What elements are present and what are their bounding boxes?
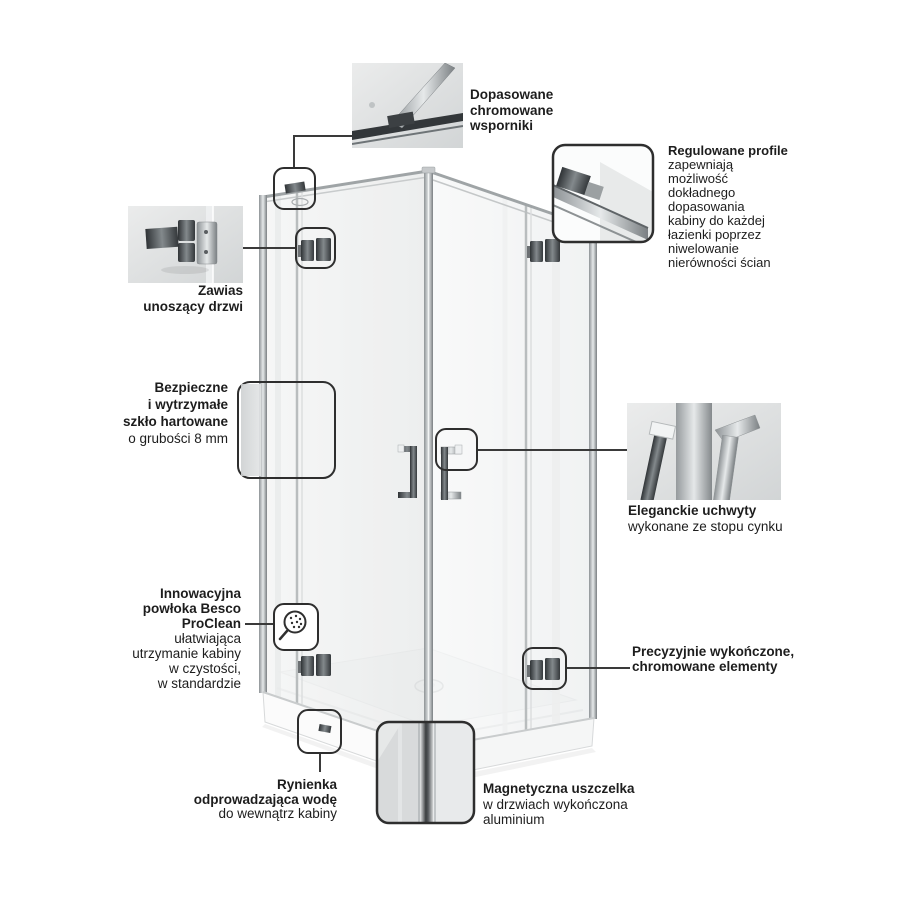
callout-tempered-glass-title: Bezpieczne i wytrzymałe szkło hartowane xyxy=(123,379,228,430)
inset-photo-handles xyxy=(627,403,781,504)
callout-adjustable-profiles-title: Regulowane profile xyxy=(668,144,788,158)
cabin-diagram xyxy=(0,0,900,900)
callout-chromed-elements: Precyzyjnie wykończone, chromowane eleme… xyxy=(632,645,794,674)
callout-magnetic-seal-text: w drzwiach wykończona aluminium xyxy=(483,797,635,828)
callout-proclean-coating-title: Innowacyjna powłoka Besco ProClean xyxy=(132,586,241,631)
inset-photo-hinge xyxy=(128,206,243,283)
callout-magnetic-seal-title: Magnetyczna uszczelka xyxy=(483,781,635,797)
callout-chromed-brackets-title: Dopasowane chromowane wsporniki xyxy=(470,87,553,134)
callout-elegant-handles-text: wykonane ze stopu cynku xyxy=(628,519,783,535)
callout-chromed-brackets: Dopasowane chromowane wsporniki xyxy=(470,87,553,134)
callout-chromed-elements-title: Precyzyjnie wykończone, chromowane eleme… xyxy=(632,645,794,674)
callout-adjustable-profiles: Regulowane profile zapewniają możliwość … xyxy=(668,144,788,270)
callout-lifting-hinge: Zawias unoszący drzwi xyxy=(143,283,243,314)
proclean-badge xyxy=(274,604,318,650)
callout-adjustable-profiles-text: zapewniają możliwość dokładnego dopasowa… xyxy=(668,158,788,270)
connector-brackets xyxy=(294,136,352,168)
callout-lifting-hinge-title: Zawias unoszący drzwi xyxy=(143,283,243,314)
callout-elegant-handles-title: Eleganckie uchwyty xyxy=(628,503,783,519)
glass-edge-sample xyxy=(241,384,261,476)
callout-proclean-coating: Innowacyjna powłoka Besco ProClean ułatw… xyxy=(132,586,241,691)
inset-photo-magnet-seal xyxy=(377,722,474,823)
infographic-canvas: Dopasowane chromowane wsporniki Regulowa… xyxy=(0,0,900,900)
callout-proclean-coating-text: ułatwiająca utrzymanie kabiny w czystośc… xyxy=(132,631,241,691)
callout-water-channel-text: do wewnątrz kabiny xyxy=(194,807,337,822)
callout-water-channel: Rynienka odprowadzająca wodę do wewnątrz… xyxy=(194,778,337,822)
inset-photo-profiles xyxy=(553,145,653,246)
callout-elegant-handles: Eleganckie uchwyty wykonane ze stopu cyn… xyxy=(628,503,783,534)
callout-tempered-glass: Bezpieczne i wytrzymałe szkło hartowane … xyxy=(123,379,228,447)
right-wall-glass xyxy=(428,171,594,748)
callout-magnetic-seal: Magnetyczna uszczelka w drzwiach wykończ… xyxy=(483,781,635,828)
right-wall-profile xyxy=(589,226,597,719)
left-wall-glass xyxy=(263,171,428,748)
inset-photo-brackets xyxy=(352,63,463,148)
callout-tempered-glass-text: o grubości 8 mm xyxy=(123,430,228,447)
callout-water-channel-title: Rynienka odprowadzająca wodę xyxy=(194,778,337,807)
